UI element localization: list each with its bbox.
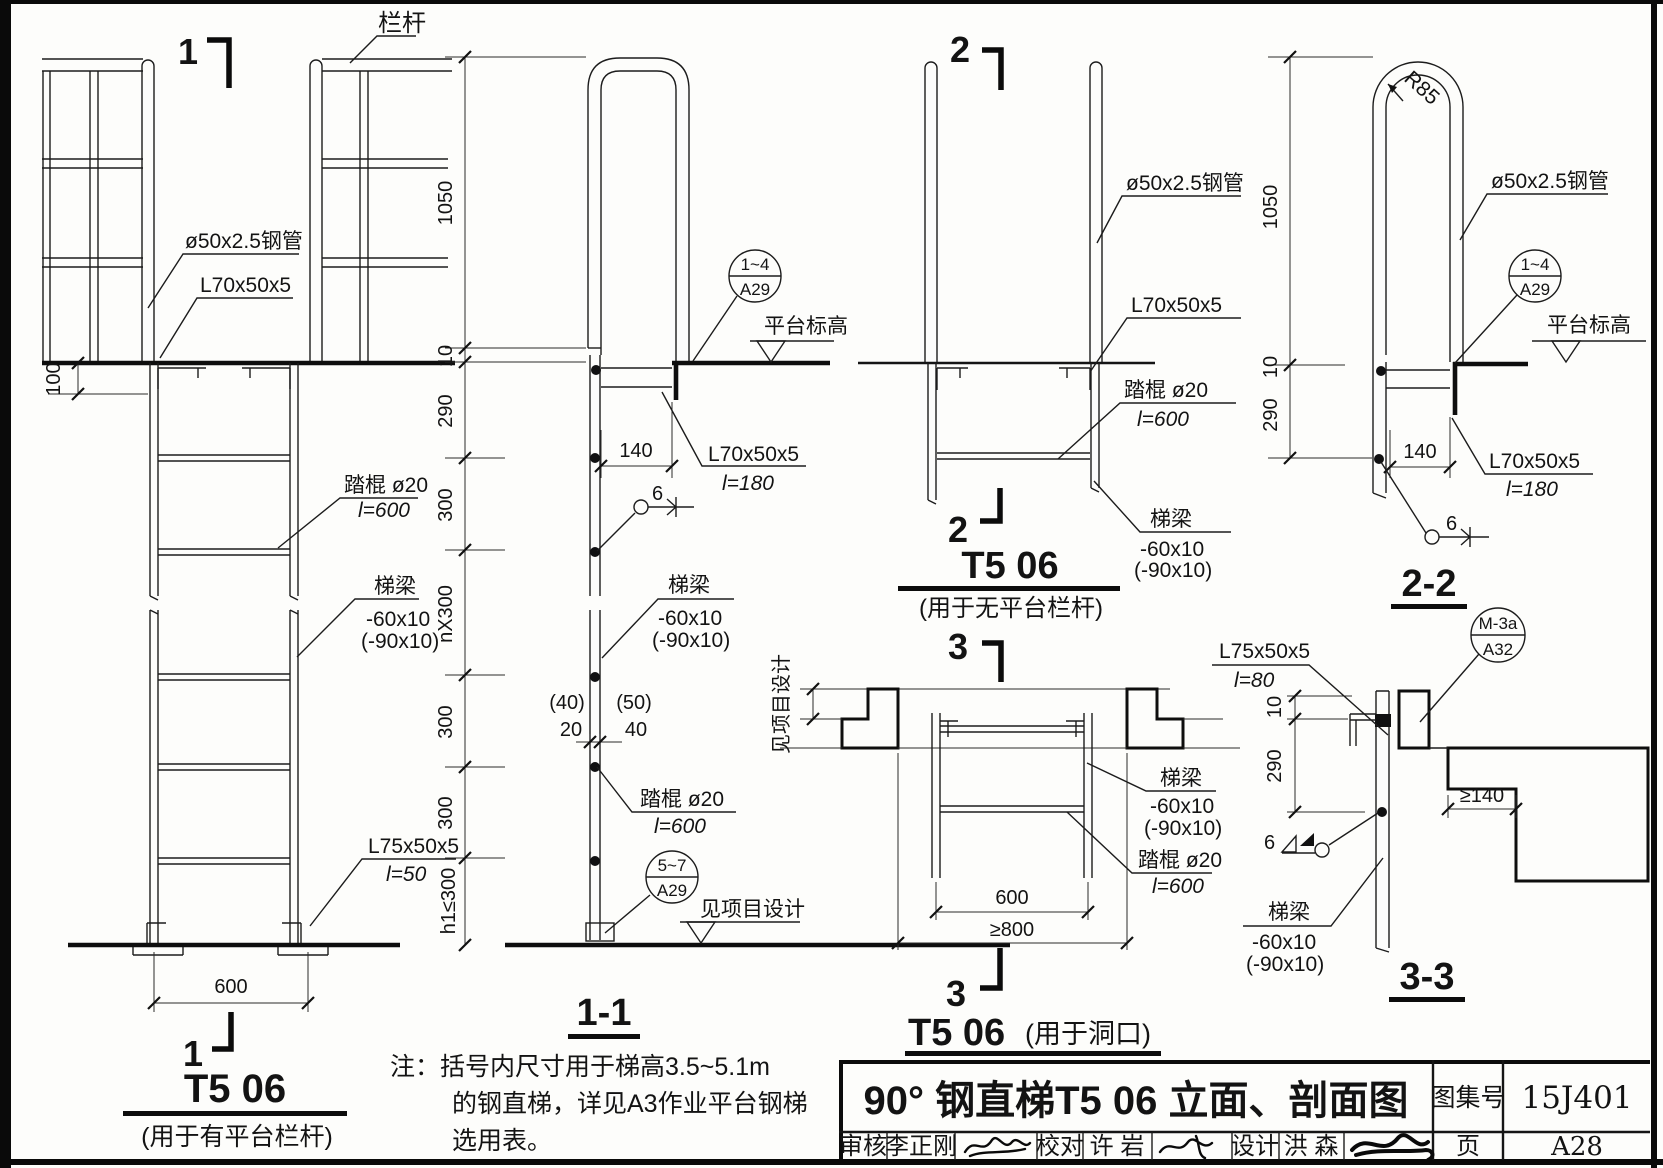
svg-text:A32: A32 — [1483, 640, 1513, 659]
beam-size-alt-label: (-90x10) — [361, 630, 439, 653]
svg-text:ø50x2.5钢管: ø50x2.5钢管 — [1491, 170, 1609, 193]
proof-name: 许 岩 — [1090, 1133, 1145, 1160]
callout-1-4-A29: 1~4 A29 — [1455, 250, 1561, 363]
labels: ø50x2.5钢管 L70x50x5 踏棍 ø20 l=600 梯梁 -60x1… — [1058, 172, 1244, 582]
svg-text:140: 140 — [1403, 441, 1436, 463]
svg-text:-60x10: -60x10 — [1150, 795, 1214, 818]
svg-text:10: 10 — [1260, 356, 1282, 378]
dim-label: 100 — [43, 362, 65, 395]
svg-text:梯梁: 梯梁 — [668, 574, 710, 597]
svg-text:-60x10: -60x10 — [1140, 538, 1204, 561]
svg-text:300: 300 — [435, 796, 457, 829]
callout-M3a-A32: M-3a A32 — [1420, 608, 1525, 722]
svg-text:选用表。: 选用表。 — [452, 1127, 552, 1155]
svg-text:l=180: l=180 — [1506, 478, 1558, 501]
slab-lines — [780, 719, 1240, 748]
beam-size-label: -60x10 — [366, 608, 430, 631]
stringer — [1350, 691, 1391, 952]
title-underline — [898, 586, 1120, 591]
svg-text:300: 300 — [435, 488, 457, 521]
svg-text:40: 40 — [625, 719, 647, 741]
svg-text:l=600: l=600 — [654, 815, 706, 838]
section-marker-1-bottom: 1 — [183, 1012, 231, 1074]
svg-text:1~4: 1~4 — [741, 255, 770, 274]
weld-mark: 6 — [597, 483, 694, 551]
svg-text:A29: A29 — [657, 881, 687, 900]
labels: 梯梁 -60x10 (-90x10) 踏棍 ø20 l=600 — [1067, 763, 1222, 898]
svg-text:10: 10 — [1264, 696, 1286, 718]
beam-label: 梯梁 — [374, 575, 416, 598]
proof-label: 校对 — [1036, 1133, 1084, 1160]
view-subtitle: (用于洞口) — [1025, 1019, 1151, 1049]
base-angles — [133, 923, 328, 955]
view-subtitle: (用于有平台栏杆) — [141, 1123, 333, 1151]
dim-800: ≥800 — [892, 753, 1133, 950]
elevation-with-railing: 100 600 栏杆 ø50x2.5钢管 L70x50x5 踏棍 ø20 l=6… — [42, 10, 459, 1151]
svg-text:ø50x2.5钢管: ø50x2.5钢管 — [1126, 172, 1244, 195]
section-3-3: 10 290 ≥140 L75x50x5 l=80 M-3a A32 6 — [1212, 608, 1648, 1002]
signature-designer — [1352, 1135, 1432, 1160]
stringer-section — [586, 355, 614, 941]
section-1-1: 1050 10 290 300 nX300 300 300 h1≤300 — [390, 51, 1010, 1155]
svg-text:R85: R85 — [1400, 67, 1444, 110]
svg-text:l=600: l=600 — [1137, 408, 1189, 431]
svg-text:290: 290 — [1260, 398, 1282, 431]
technical-drawing: 100 600 栏杆 ø50x2.5钢管 L70x50x5 踏棍 ø20 l=6… — [0, 0, 1663, 1168]
svg-text:(40): (40) — [549, 692, 585, 714]
svg-text:140: 140 — [619, 440, 652, 462]
angle-seats — [937, 368, 1090, 390]
view-title: T5 06 — [184, 1067, 286, 1111]
design-label: 设计 — [1231, 1133, 1279, 1160]
svg-text:l=180: l=180 — [722, 472, 774, 495]
svg-text:≥800: ≥800 — [990, 919, 1034, 941]
beam-label-group: 梯梁 -60x10 (-90x10) — [1243, 858, 1383, 976]
note-text: 注：括号内尺寸用于梯高3.5~5.1m 的钢直梯，详见A3作业平台钢梯 选用表。 — [390, 1053, 808, 1155]
svg-text:梯梁: 梯梁 — [1160, 767, 1202, 790]
svg-text:-60x10: -60x10 — [658, 607, 722, 630]
section-marker-2-top: 2 — [950, 29, 1001, 90]
platform-level-symbol: 平台标高 — [750, 315, 848, 362]
ladder-rungs — [158, 455, 290, 864]
title-underline — [568, 1034, 640, 1039]
svg-text:踏棍 ø20: 踏棍 ø20 — [1124, 379, 1208, 402]
ground-level-symbol: 见项目设计 — [680, 898, 805, 943]
signature-auditor — [965, 1138, 1030, 1156]
svg-text:L70x50x5: L70x50x5 — [1131, 294, 1222, 317]
rung-label-group: 踏棍 ø20 l=600 — [597, 767, 736, 838]
svg-text:A29: A29 — [1520, 280, 1550, 299]
title-underline — [1389, 997, 1465, 1002]
elevation-no-railing: ø50x2.5钢管 L70x50x5 踏棍 ø20 l=600 梯梁 -60x1… — [858, 29, 1244, 622]
view-title: T5 06 — [961, 545, 1058, 587]
title-underline — [905, 1051, 1161, 1056]
elevation-labels: 栏杆 ø50x2.5钢管 L70x50x5 踏棍 ø20 l=600 梯梁 -6… — [148, 10, 459, 926]
view-title: T5 06 — [908, 1012, 1005, 1054]
svg-text:290: 290 — [435, 394, 457, 427]
dim-140: 140 — [595, 402, 678, 478]
base-angle-label: L75x50x5 — [368, 835, 459, 858]
page-number: A28 — [1550, 1132, 1603, 1162]
slab-block-left — [842, 689, 898, 748]
svg-text:A29: A29 — [740, 280, 770, 299]
platform-edge — [1376, 362, 1528, 415]
svg-text:(-90x10): (-90x10) — [652, 629, 730, 652]
svg-text:h1≤300: h1≤300 — [438, 868, 460, 935]
platform-edge — [591, 362, 830, 400]
section-2-2: 1050 10 290 R85 140 — [1260, 51, 1646, 609]
svg-text:nX300: nX300 — [435, 585, 457, 643]
section-marker-3-bottom: 3 — [946, 948, 1000, 1014]
opening-section: 3 见项目设计 600 ≥800 — [770, 626, 1240, 1056]
platform-railing — [42, 59, 452, 362]
svg-text:见项目设计: 见项目设计 — [700, 898, 805, 921]
atlas-number: 15J401 — [1521, 1080, 1632, 1116]
signature-checker — [1160, 1136, 1212, 1158]
clip-angle-label: L75x50x5 l=80 — [1212, 640, 1388, 735]
svg-text:20: 20 — [560, 719, 582, 741]
design-name: 洪 森 — [1284, 1133, 1339, 1160]
svg-text:L75x50x5: L75x50x5 — [1219, 640, 1310, 663]
dim-chain: 10 290 — [1264, 690, 1365, 818]
svg-text:5~7: 5~7 — [658, 856, 687, 875]
svg-text:(-90x10): (-90x10) — [1144, 817, 1222, 840]
svg-text:1: 1 — [178, 31, 198, 72]
angle70-label: L70x50x5 — [200, 274, 291, 297]
dim-label: 600 — [214, 976, 247, 998]
atlas-label: 图集号 — [1430, 1084, 1505, 1112]
svg-text:6: 6 — [1264, 832, 1275, 854]
pipe-label: ø50x2.5钢管 — [185, 230, 303, 253]
svg-text:l=600: l=600 — [1152, 875, 1204, 898]
platform-angle-seats — [158, 368, 290, 389]
drawing-sheet: 100 600 栏杆 ø50x2.5钢管 L70x50x5 踏棍 ø20 l=6… — [0, 0, 1663, 1168]
section-title: 2-2 — [1402, 563, 1457, 605]
ladder-stanchions — [142, 60, 322, 362]
svg-text:见项目设计: 见项目设计 — [770, 654, 793, 754]
callout-5-7-A29: 5~7 A29 — [605, 851, 698, 933]
svg-text:1~4: 1~4 — [1521, 255, 1550, 274]
audit-label: 审核 — [839, 1133, 887, 1160]
svg-text:平台标高: 平台标高 — [1547, 314, 1631, 337]
concrete-slab — [1448, 748, 1648, 881]
section-marker-1-top: 1 — [178, 31, 229, 88]
svg-text:(50): (50) — [616, 692, 652, 714]
section-marker-2-bottom: 2 — [948, 488, 1000, 550]
weld-mark: 6 — [1264, 813, 1378, 857]
svg-text:1050: 1050 — [1260, 185, 1282, 230]
platform-level-symbol: 平台标高 — [1532, 314, 1646, 362]
dim-chain: 1050 10 290 — [1260, 51, 1373, 464]
svg-text:300: 300 — [435, 705, 457, 738]
svg-text:3: 3 — [946, 973, 966, 1014]
svg-text:梯梁: 梯梁 — [1268, 901, 1310, 924]
rung — [937, 453, 1090, 459]
audit-name: 李正刚 — [885, 1133, 957, 1160]
dim-600: 600 — [148, 952, 314, 1012]
section-marker-3-top: 3 — [948, 626, 1001, 682]
slab-block-right — [1127, 689, 1183, 748]
svg-text:6: 6 — [652, 483, 663, 505]
rung-length-label: l=600 — [358, 499, 410, 522]
svg-text:2: 2 — [948, 509, 968, 550]
svg-text:L70x50x5: L70x50x5 — [1489, 450, 1580, 473]
svg-text:-60x10: -60x10 — [1252, 931, 1316, 954]
svg-text:的钢直梯，详见A3作业平台钢梯: 的钢直梯，详见A3作业平台钢梯 — [452, 1090, 808, 1118]
title-underline — [1391, 604, 1467, 609]
beam-label-group: 梯梁 -60x10 (-90x10) — [602, 574, 734, 658]
section-title: 3-3 — [1400, 956, 1455, 998]
svg-text:600: 600 — [995, 887, 1028, 909]
svg-text:平台标高: 平台标高 — [764, 315, 848, 338]
rung-label: 踏棍 ø20 — [344, 474, 428, 497]
svg-text:踏棍 ø20: 踏棍 ø20 — [1138, 849, 1222, 872]
dim-chain: 1050 10 290 300 nX300 300 300 h1≤300 — [435, 51, 586, 951]
svg-text:6: 6 — [1446, 513, 1457, 535]
svg-text:2: 2 — [950, 29, 970, 70]
handrail-loop — [588, 58, 689, 362]
callout-1-4-A29: 1~4 A29 — [693, 250, 781, 361]
svg-text:(-90x10): (-90x10) — [1134, 559, 1212, 582]
dim-140: 140 — [1384, 417, 1456, 478]
seat-angle-label: L70x50x5 l=180 — [662, 392, 806, 495]
stringers — [928, 363, 1099, 504]
svg-text:1050: 1050 — [435, 181, 457, 226]
svg-text:290: 290 — [1264, 749, 1286, 782]
stringer — [1373, 362, 1386, 498]
section-title: 1-1 — [577, 992, 632, 1034]
svg-text:10: 10 — [435, 345, 457, 367]
title-block: 90° 钢直梯T5 06 立面、剖面图 图集号 15J401 审核 李正刚 校对… — [839, 1060, 1650, 1162]
dim-600: 600 — [930, 882, 1094, 920]
view-subtitle: (用于无平台栏杆) — [919, 595, 1103, 622]
svg-text:踏棍 ø20: 踏棍 ø20 — [640, 788, 724, 811]
svg-text:3: 3 — [948, 626, 968, 667]
ladder — [932, 713, 1092, 878]
radius-label: R85 — [1388, 67, 1444, 110]
svg-text:梯梁: 梯梁 — [1150, 508, 1192, 531]
weld-mark: 6 — [1381, 462, 1489, 547]
svg-text:注：括号内尺寸用于梯高3.5~5.1m: 注：括号内尺寸用于梯高3.5~5.1m — [390, 1053, 770, 1081]
base-angle-length-label: l=50 — [386, 863, 427, 886]
drawing-title: 90° 钢直梯T5 06 立面、剖面图 — [864, 1079, 1409, 1123]
title-underline — [123, 1111, 347, 1116]
svg-text:≥140: ≥140 — [1460, 785, 1504, 807]
handrail-label: 栏杆 — [378, 10, 426, 37]
svg-text:l=80: l=80 — [1234, 669, 1275, 692]
concrete-upstand — [1399, 691, 1429, 748]
stanchions — [925, 62, 1102, 362]
page-label: 页 — [1456, 1133, 1480, 1160]
svg-text:(-90x10): (-90x10) — [1246, 953, 1324, 976]
svg-text:L70x50x5: L70x50x5 — [708, 443, 799, 466]
handrail-u-loop — [1373, 62, 1463, 362]
svg-text:M-3a: M-3a — [1479, 614, 1518, 633]
